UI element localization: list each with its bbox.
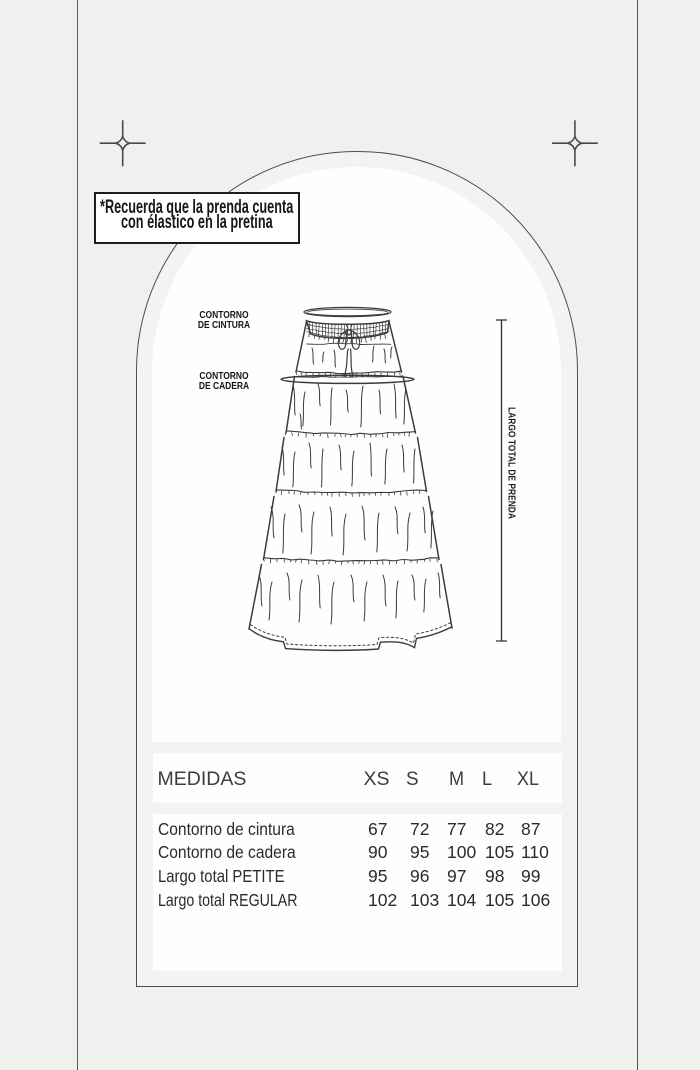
svg-text:LARGO TOTAL DE PRENDA: LARGO TOTAL DE PRENDA xyxy=(506,407,517,520)
